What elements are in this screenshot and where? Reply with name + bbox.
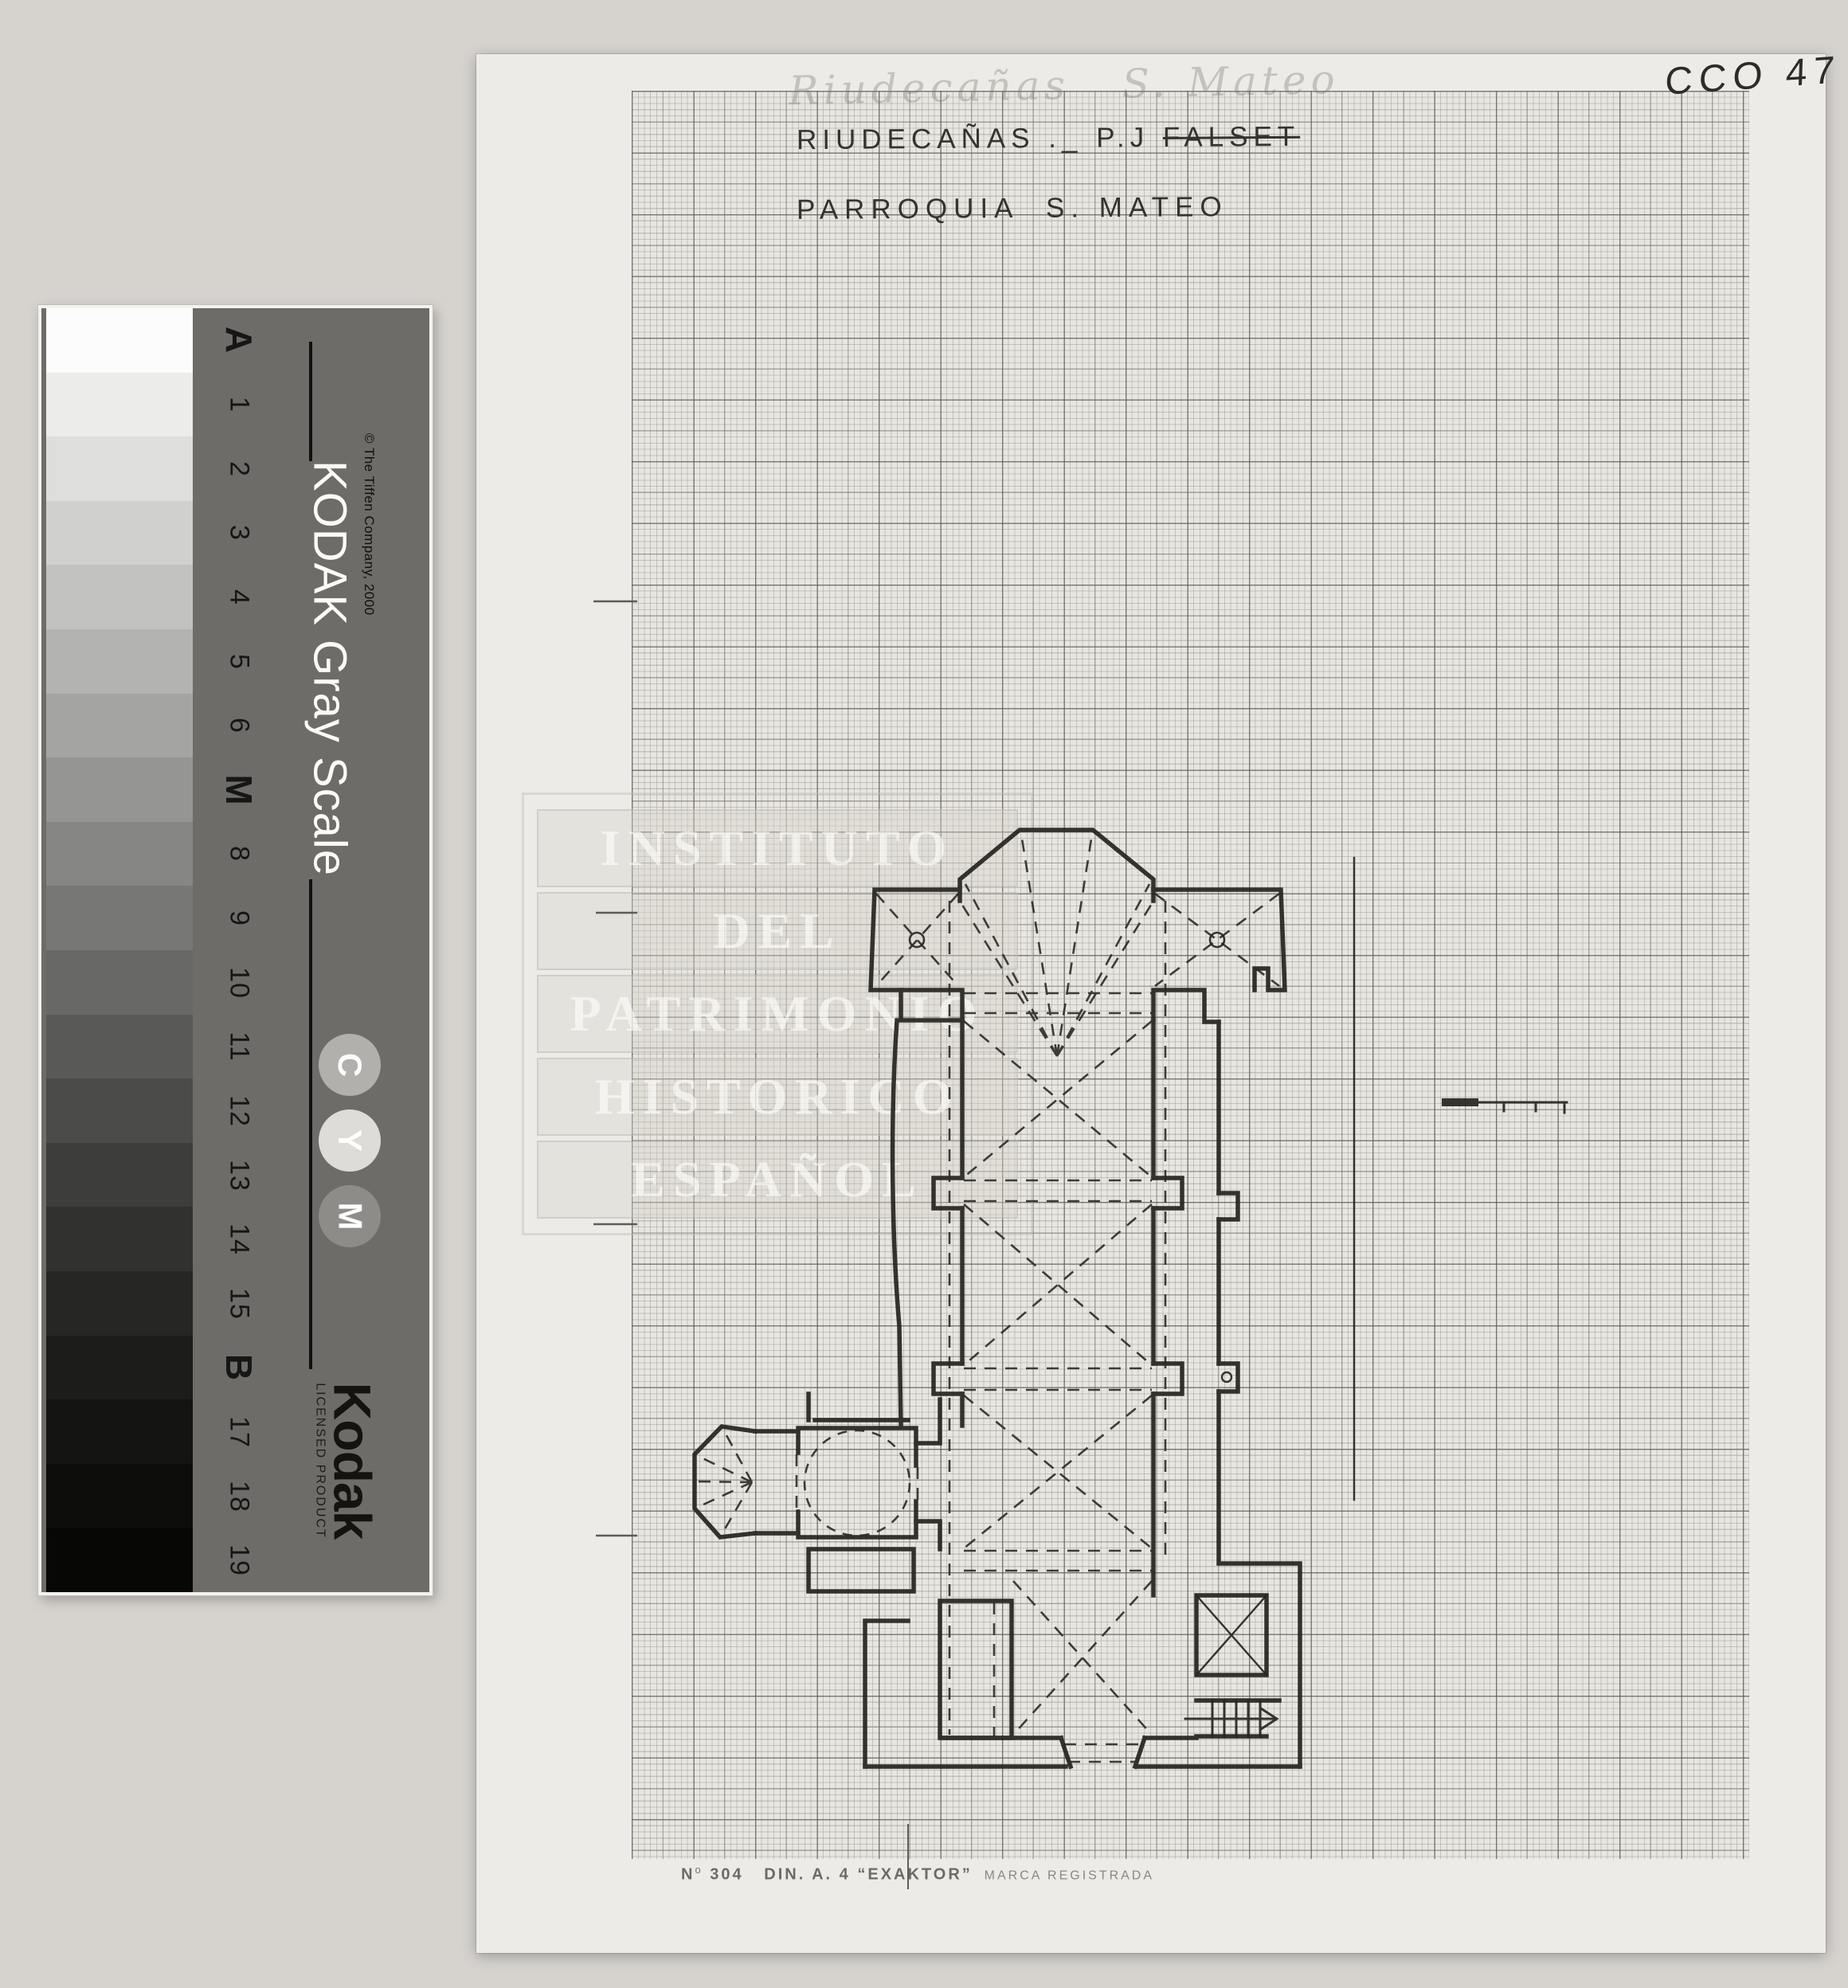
watermark-line: HISTORICO — [537, 1058, 1018, 1136]
gray-patch — [46, 757, 193, 822]
kodak-logo: Kodak LICENSED PRODUCT — [312, 1383, 375, 1540]
gray-patch — [46, 1464, 193, 1528]
kodak-brand-text: Kodak — [328, 1383, 375, 1540]
gray-patch — [46, 822, 193, 886]
gray-patch — [46, 1399, 193, 1464]
watermark-line: INSTITUTO — [537, 809, 1018, 887]
plan-title-line1: RIUDECAÑAS ._ P.J FALSET — [797, 121, 1300, 156]
paper-brand-footer: No 304 DIN. A. 4 “EXAKTOR” MARCA REGISTR… — [681, 1864, 1154, 1884]
patch-label: 2 — [224, 461, 255, 477]
footer-brand: “EXAKTOR” — [857, 1866, 972, 1884]
patch-label: B — [217, 1354, 260, 1381]
patch-label: 5 — [224, 654, 255, 670]
patch-label: 18 — [224, 1481, 255, 1513]
patch-label: 19 — [224, 1544, 255, 1576]
gray-patch — [46, 629, 193, 694]
magenta-letter: M — [331, 1203, 369, 1231]
patch-label: 14 — [224, 1223, 255, 1255]
patch-label: M — [217, 774, 260, 805]
patch-label: 10 — [224, 967, 255, 999]
gray-patch — [46, 1271, 193, 1336]
patch-label: 11 — [224, 1031, 255, 1061]
patch-label: 4 — [224, 589, 255, 605]
patch-label: 15 — [224, 1288, 255, 1320]
archive-watermark: INSTITUTO DEL PATRIMONIO HISTORICO ESPAÑ… — [522, 792, 1033, 1235]
gray-scale-label-panel: A 1 2 3 4 5 6 M 8 9 10 11 12 13 14 15 B … — [193, 308, 429, 1592]
footer-n-sup: o — [695, 1864, 703, 1876]
yellow-letter: Y — [331, 1129, 369, 1152]
gray-patch — [46, 1528, 193, 1592]
graph-paper-sheet: Riudecañas S. Mateo CCO 47 RIUDECAÑAS ._… — [476, 54, 1826, 1953]
gray-patch — [46, 1078, 193, 1143]
copyright-text: © The Tiffen Company, 2000 — [361, 433, 377, 616]
rule-line — [309, 342, 312, 461]
patch-label: 9 — [224, 910, 255, 926]
title-struck-word: FALSET — [1163, 121, 1301, 153]
gray-patch-column — [46, 308, 193, 1592]
plan-title-line2: PARROQUIA S. MATEO — [797, 191, 1228, 226]
gray-patch — [46, 950, 193, 1015]
title-place: RIUDECAÑAS ._ P.J — [797, 122, 1163, 155]
patch-label: 12 — [224, 1095, 255, 1127]
patch-label: 6 — [224, 718, 255, 734]
rule-line — [309, 879, 312, 1369]
patch-label: 17 — [224, 1416, 255, 1448]
footer-number: 304 — [703, 1866, 765, 1884]
patch-label: 13 — [224, 1160, 255, 1192]
magenta-circle: M — [319, 1185, 381, 1247]
patch-label: 3 — [224, 525, 255, 541]
gray-patch — [46, 1015, 193, 1079]
gray-patch — [46, 1143, 193, 1207]
footer-format: DIN. A. 4 — [764, 1866, 857, 1884]
licensed-product-text: LICENSED PRODUCT — [312, 1383, 327, 1539]
yellow-circle: Y — [319, 1109, 381, 1172]
gray-patch — [46, 308, 193, 373]
gray-patch — [46, 436, 193, 501]
footer-n: N — [681, 1866, 695, 1884]
gray-patch — [46, 886, 193, 950]
gray-patch — [46, 1336, 193, 1400]
gray-patch — [46, 694, 193, 758]
scanner-bed: A 1 2 3 4 5 6 M 8 9 10 11 12 13 14 15 B … — [0, 0, 1848, 1988]
gray-patch — [46, 565, 193, 629]
gray-scale-title: KODAK Gray Scale — [303, 460, 357, 876]
footer-registered: MARCA REGISTRADA — [973, 1869, 1154, 1883]
watermark-line: ESPAÑOL — [537, 1141, 1018, 1219]
patch-label: 8 — [224, 846, 255, 862]
patch-label: 1 — [224, 397, 255, 413]
gray-patch — [46, 1207, 193, 1271]
watermark-line: DEL — [537, 892, 1018, 970]
gray-patch — [46, 501, 193, 565]
gray-patch — [46, 373, 193, 437]
watermark-line: PATRIMONIO — [537, 975, 1018, 1053]
inventory-code: CCO 47 — [1664, 48, 1842, 104]
patch-label: A — [217, 327, 260, 354]
kodak-gray-scale-strip: A 1 2 3 4 5 6 M 8 9 10 11 12 13 14 15 B … — [38, 305, 433, 1595]
cyan-letter: C — [331, 1053, 369, 1077]
cyan-circle: C — [319, 1034, 381, 1096]
